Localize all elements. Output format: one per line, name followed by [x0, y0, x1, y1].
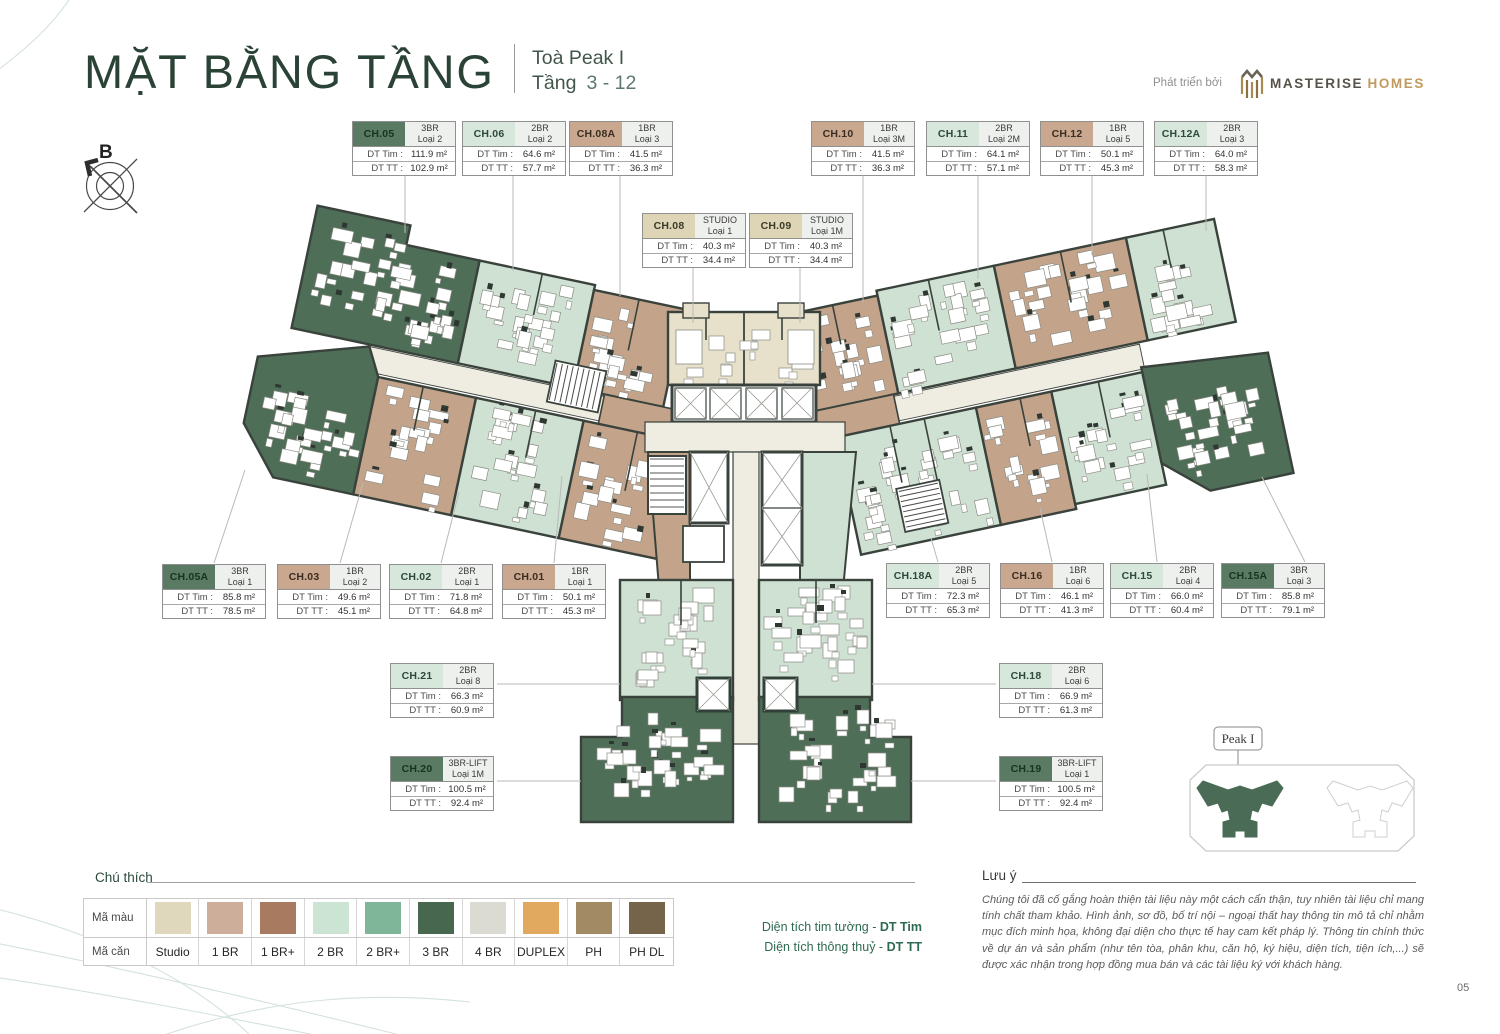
svg-text:Peak I: Peak I	[1222, 731, 1255, 746]
svg-text:B: B	[99, 142, 113, 163]
